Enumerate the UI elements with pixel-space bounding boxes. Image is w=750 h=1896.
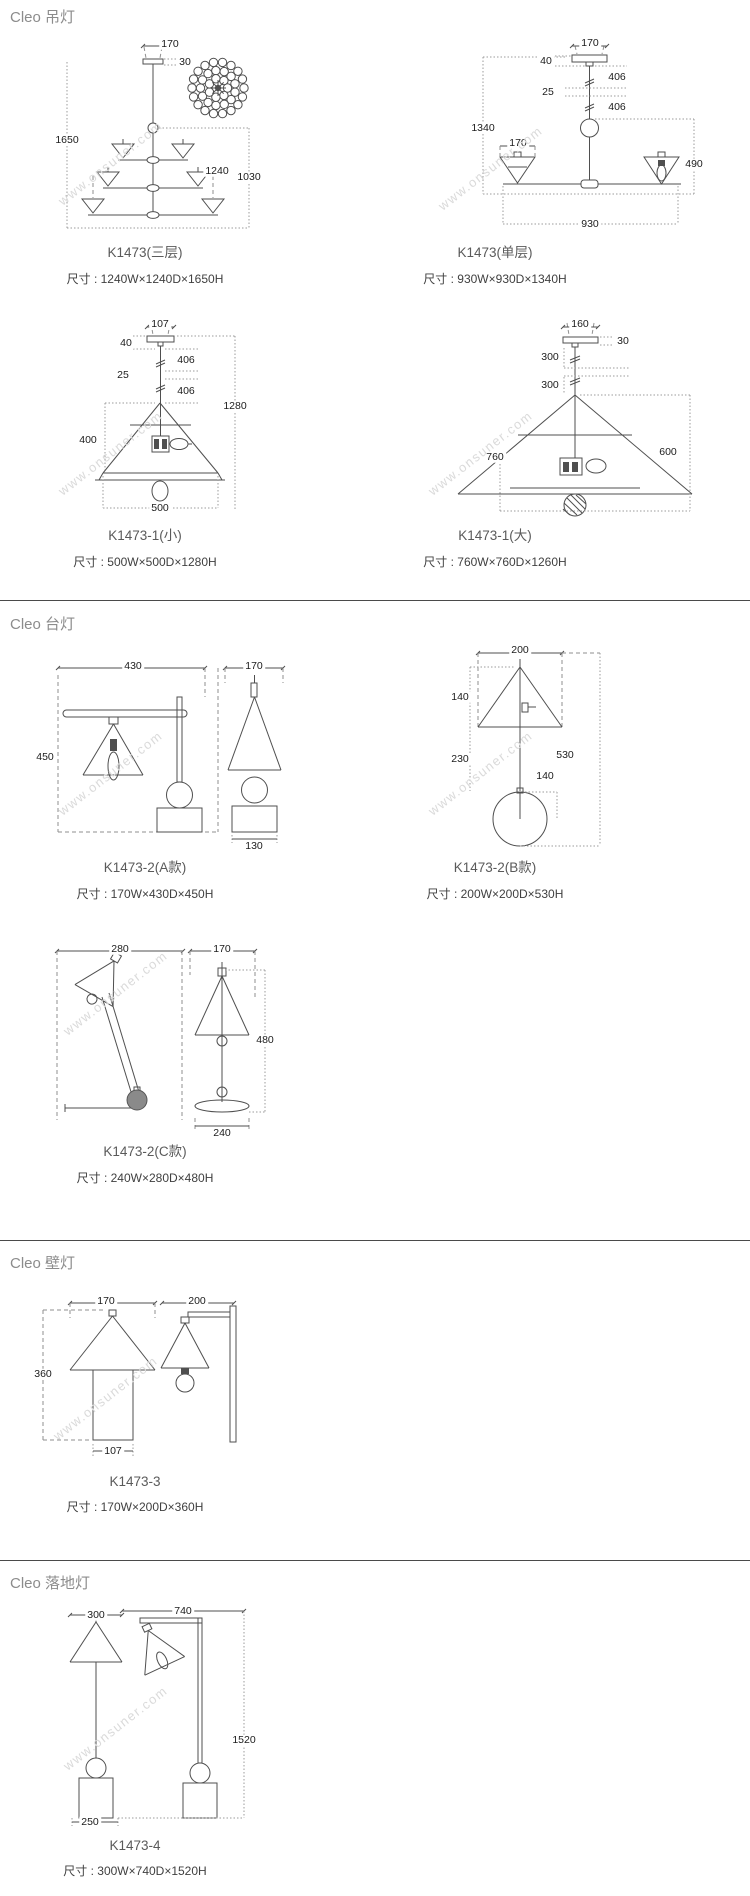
dim-depth: 200 <box>186 1296 208 1307</box>
dim-width: 170 <box>243 661 265 672</box>
drawing-k1473-2b: 200 140 230 530 140 <box>415 635 655 860</box>
section-divider <box>0 600 750 601</box>
drawing-k1473-1tier: 170 40 406 25 406 1340 170 490 930 <box>415 36 715 241</box>
product-label-k1473-1-large: K1473-1(大) 尺寸 : 760W×760D×1260H <box>370 524 620 570</box>
product-label-k1473-2b: K1473-2(B款) 尺寸 : 200W×200D×530H <box>370 856 620 902</box>
product-name: K1473-2(B款) <box>370 856 620 876</box>
dim-base-width: 250 <box>79 1817 101 1828</box>
product-name: K1473-2(C款) <box>20 1140 270 1160</box>
dim-total-height: 1280 <box>221 401 248 412</box>
dim-width: 500 <box>149 503 171 514</box>
dim-stem-height: 230 <box>449 754 471 765</box>
dim-shade-width: 300 <box>85 1610 107 1621</box>
section-divider <box>0 1240 750 1241</box>
drawing-k1473-3: 170 200 360 107 <box>25 1290 265 1465</box>
dim-total-height: 1340 <box>469 123 496 134</box>
dim-canopy-width: 170 <box>159 39 181 50</box>
dim-width: 200 <box>509 645 531 656</box>
k1473-2a-line-art <box>25 635 315 860</box>
section-divider <box>0 1560 750 1561</box>
product-name: K1473-1(小) <box>20 524 270 544</box>
product-label-k1473-1-small: K1473-1(小) 尺寸 : 500W×500D×1280H <box>20 524 270 570</box>
product-size: 尺寸 : 760W×760D×1260H <box>370 553 620 570</box>
dim-rod-lower: 300 <box>539 380 561 391</box>
section-title-pendant: Cleo 吊灯 <box>10 6 75 27</box>
dim-width: 760 <box>484 452 506 463</box>
dim-depth: 280 <box>109 944 131 955</box>
product-name: K1473(三层) <box>20 241 270 261</box>
product-size: 尺寸 : 500W×500D×1280H <box>20 553 270 570</box>
dim-total-height: 530 <box>554 750 576 761</box>
product-size: 尺寸 : 1240W×1240D×1650H <box>20 270 270 287</box>
k1473-2b-line-art <box>415 635 655 860</box>
dim-canopy-width: 170 <box>579 38 601 49</box>
dim-shade-height: 400 <box>77 435 99 446</box>
dim-body-height: 1030 <box>235 172 262 183</box>
product-size: 尺寸 : 300W×740D×1520H <box>10 1862 260 1879</box>
dim-rod-upper: 406 <box>606 72 628 83</box>
dim-canopy-height: 30 <box>615 336 631 347</box>
dim-rod-upper: 300 <box>539 352 561 363</box>
product-size: 尺寸 : 170W×430D×450H <box>20 885 270 902</box>
dim-shade-width: 170 <box>507 138 529 149</box>
dim-canopy-width: 107 <box>149 319 171 330</box>
dim-depth: 430 <box>122 661 144 672</box>
product-name: K1473(单层) <box>370 241 620 261</box>
product-size: 尺寸 : 200W×200D×530H <box>370 885 620 902</box>
drawing-k1473-4: 300 740 1520 250 <box>30 1600 280 1835</box>
product-size: 尺寸 : 170W×200D×360H <box>10 1498 260 1515</box>
dim-height: 450 <box>34 752 56 763</box>
dim-height: 1520 <box>230 1735 257 1746</box>
product-name: K1473-4 <box>10 1838 260 1853</box>
section-title-table: Cleo 台灯 <box>10 613 75 634</box>
product-label-k1473-1tier: K1473(单层) 尺寸 : 930W×930D×1340H <box>370 241 620 287</box>
product-label-k1473-3: K1473-3 尺寸 : 170W×200D×360H <box>10 1474 260 1515</box>
dim-rod-gap: 25 <box>115 370 131 381</box>
dim-width: 930 <box>579 219 601 230</box>
product-size: 尺寸 : 240W×280D×480H <box>20 1169 270 1186</box>
dim-canopy-height: 40 <box>538 56 554 67</box>
dim-canopy-height: 30 <box>177 57 193 68</box>
dim-depth: 740 <box>172 1606 194 1617</box>
dim-height: 480 <box>254 1035 276 1046</box>
k1473-1tier-line-art <box>415 36 715 241</box>
dim-canopy-height: 40 <box>118 338 134 349</box>
section-title-wall: Cleo 壁灯 <box>10 1252 75 1273</box>
dim-base-width: 240 <box>211 1128 233 1139</box>
product-name: K1473-1(大) <box>370 524 620 544</box>
dim-width: 170 <box>211 944 233 955</box>
k1473-4-line-art <box>30 1600 280 1835</box>
dim-base-width: 107 <box>102 1446 124 1457</box>
drawing-k1473-2a: 430 170 450 130 <box>25 635 315 860</box>
drawing-k1473-1-large: 160 30 300 300 760 600 <box>400 318 710 533</box>
dim-ball-diameter: 140 <box>534 771 556 782</box>
dim-shade-height: 600 <box>657 447 679 458</box>
k1473-3-line-art <box>25 1290 265 1465</box>
dim-width: 170 <box>95 1296 117 1307</box>
spec-sheet-page: Cleo 吊灯 170 30 <box>0 0 750 1896</box>
dim-rod-gap: 25 <box>540 87 556 98</box>
dim-base-width: 130 <box>243 841 265 852</box>
product-name: K1473-2(A款) <box>20 856 270 876</box>
dim-canopy-width: 160 <box>569 319 591 330</box>
product-name: K1473-3 <box>10 1474 260 1489</box>
product-size: 尺寸 : 930W×930D×1340H <box>370 270 620 287</box>
dim-rod-upper: 406 <box>175 355 197 366</box>
product-label-k1473-3tier: K1473(三层) 尺寸 : 1240W×1240D×1650H <box>20 241 270 287</box>
k1473-1-small-line-art <box>55 318 285 533</box>
dim-height: 360 <box>32 1369 54 1380</box>
dim-width: 1240 <box>203 166 230 177</box>
product-label-k1473-2c: K1473-2(C款) 尺寸 : 240W×280D×480H <box>20 1140 270 1186</box>
product-label-k1473-2a: K1473-2(A款) 尺寸 : 170W×430D×450H <box>20 856 270 902</box>
dim-arm-drop: 490 <box>683 159 705 170</box>
dim-rod-lower: 406 <box>175 386 197 397</box>
product-label-k1473-4: K1473-4 尺寸 : 300W×740D×1520H <box>10 1838 260 1879</box>
drawing-k1473-3tier: 170 30 1650 1240 1030 <box>45 36 315 241</box>
dim-rod-lower: 406 <box>606 102 628 113</box>
drawing-k1473-2c: 280 170 480 240 <box>25 940 305 1145</box>
section-title-floor: Cleo 落地灯 <box>10 1572 90 1593</box>
dim-total-height: 1650 <box>53 135 80 146</box>
dim-shade-height: 140 <box>449 692 471 703</box>
drawing-k1473-1-small: 107 40 406 25 406 1280 400 500 <box>55 318 285 533</box>
